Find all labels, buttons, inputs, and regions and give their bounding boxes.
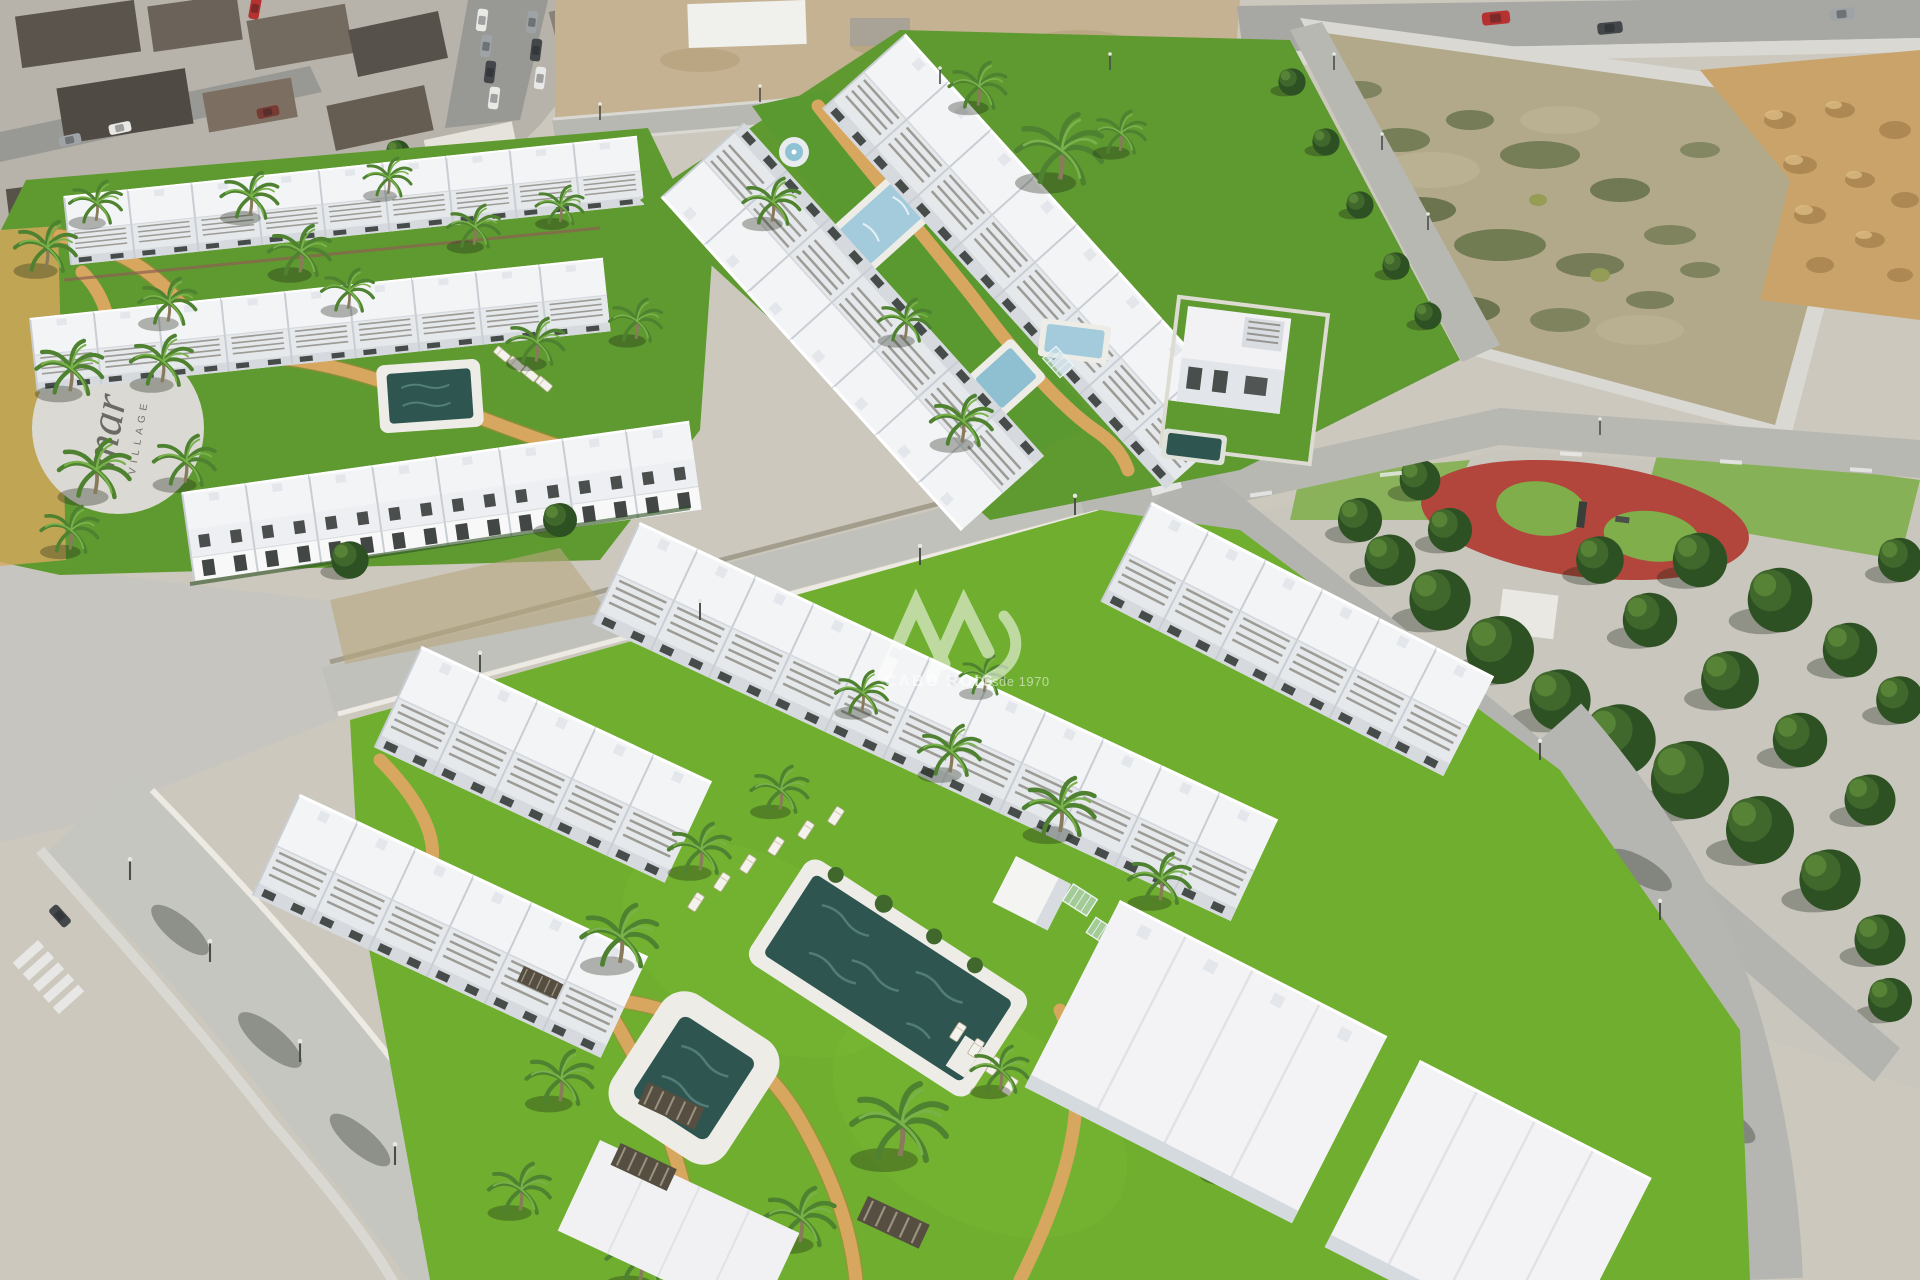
scene-canvas: mar VILLAGE	[0, 0, 1920, 1280]
watermark-tagline: Desde 1970	[974, 674, 1049, 689]
townhouse-unit	[539, 258, 610, 338]
townhouse-unit	[128, 183, 199, 259]
fountain	[779, 137, 809, 167]
townhouse-unit	[285, 285, 356, 365]
construction-building	[687, 0, 806, 48]
main-garden-pool	[376, 358, 484, 433]
townhouse-unit	[573, 136, 644, 212]
townhouse-unit	[412, 271, 483, 351]
aerial-render-image: mar VILLAGE	[0, 0, 1920, 1280]
townhouse-unit	[510, 142, 581, 218]
townhouse-unit	[626, 421, 702, 519]
townhouse-unit	[255, 169, 326, 245]
townhouse-unit	[221, 291, 292, 371]
